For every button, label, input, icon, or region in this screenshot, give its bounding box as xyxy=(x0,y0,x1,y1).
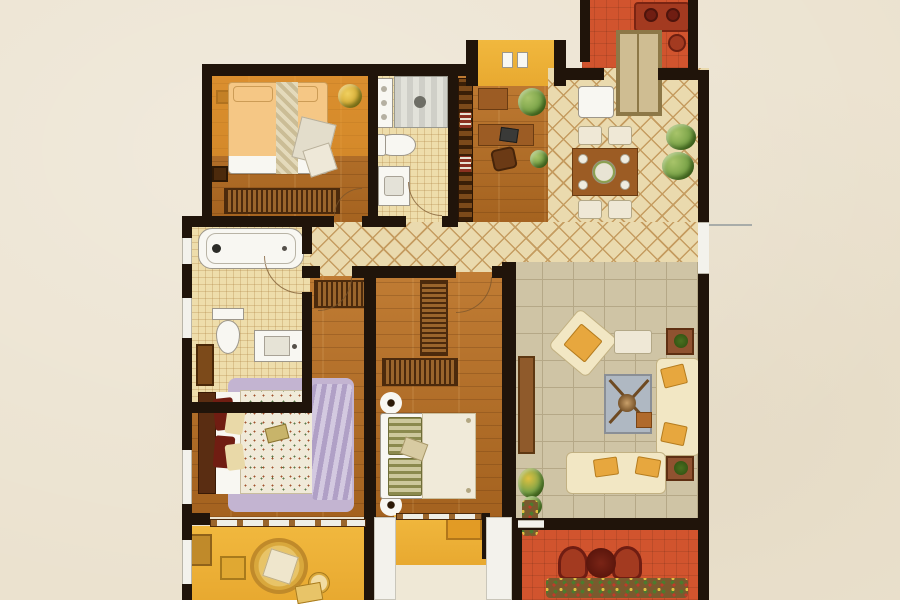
window-right xyxy=(698,222,709,274)
wall-balcony-tr-right xyxy=(688,0,698,78)
wall-bm-left-stub xyxy=(364,517,374,600)
balcony-bottom-middle-mat xyxy=(394,565,488,600)
wall-bath1-bottom xyxy=(184,402,310,413)
sofa-bottom-cushion2 xyxy=(635,456,662,478)
window-left-3 xyxy=(182,450,192,504)
study-plant-small xyxy=(530,150,548,168)
balcony-bench xyxy=(634,2,690,32)
wall-top-main xyxy=(202,64,470,76)
bedroom-left-dresser xyxy=(196,344,214,386)
platform-unit2 xyxy=(517,52,528,68)
tv-cabinet xyxy=(518,356,535,454)
wall-platform-left xyxy=(466,40,478,86)
bedroom1-wardrobe xyxy=(224,188,340,214)
slider-bed2-balcony xyxy=(210,519,366,527)
washer-knob1 xyxy=(381,86,387,92)
bedroom-middle-wardrobe-tall xyxy=(420,280,448,356)
balcony-bl-table xyxy=(220,556,246,580)
wall-bedroom1-left xyxy=(202,64,212,227)
bathtub-tap xyxy=(282,246,287,251)
entry-door-frame xyxy=(616,30,662,116)
wall-right-upper xyxy=(698,70,709,222)
vanity-left-sink xyxy=(264,336,290,356)
bench-bowl2 xyxy=(666,8,680,22)
bed1-runner xyxy=(276,82,298,174)
books-red xyxy=(460,112,471,128)
bed3-tuft1 xyxy=(466,418,471,423)
window-left-2 xyxy=(182,298,192,338)
study-cabinet xyxy=(478,88,508,110)
sofa-bottom-cushion1 xyxy=(593,456,619,477)
toilet-left-tank xyxy=(212,308,244,320)
bed3-duvet xyxy=(422,413,476,499)
wall-terrace-right xyxy=(698,518,709,600)
dining-plate-2 xyxy=(620,154,630,164)
wall-bath2-right xyxy=(448,64,458,226)
wall-right-lower xyxy=(698,274,709,520)
balcony-bl-shelf xyxy=(190,534,212,566)
wall-balcony-tr-left xyxy=(580,0,590,62)
wall-bath1-right-b xyxy=(302,292,312,413)
wall-bed2-bed3 xyxy=(364,272,376,517)
side-table-bottom-plant xyxy=(674,461,688,475)
vanity-left-tap xyxy=(292,344,297,349)
dining-plate-1 xyxy=(578,154,588,164)
window-balcony-bm-left xyxy=(374,517,396,600)
window-balcony-bl xyxy=(182,540,192,584)
vanity-top-sink xyxy=(384,176,404,196)
entry-door-leaf xyxy=(637,34,639,112)
dining-chair-2 xyxy=(608,126,632,145)
dining-plant-1 xyxy=(666,124,696,150)
bedroom1-plant xyxy=(338,84,362,108)
balcony-pot xyxy=(668,34,686,52)
wall-bed1-bath2 xyxy=(368,64,378,227)
floor-plan xyxy=(0,0,900,600)
wall-bath1-right-a xyxy=(302,216,312,254)
shower-drain xyxy=(414,96,426,108)
dining-chair-3 xyxy=(578,200,602,219)
wall-bed1-bottom-b xyxy=(362,216,378,227)
terrace-chair-left xyxy=(558,546,588,580)
coffee-tray xyxy=(636,412,652,428)
dining-plate-4 xyxy=(620,180,630,190)
window-left-1 xyxy=(182,238,192,264)
platform-unit1 xyxy=(502,52,513,68)
bed1-stool xyxy=(212,166,228,182)
terrace-flower-bed xyxy=(546,578,688,598)
bench-bowl1 xyxy=(644,8,658,22)
slider-living-terrace xyxy=(518,520,544,528)
washer-knob2 xyxy=(381,100,387,106)
washer-knob3 xyxy=(381,114,387,120)
bathtub-drain xyxy=(212,244,221,253)
bed3-tuft2 xyxy=(466,488,471,493)
dining-plate-3 xyxy=(578,180,588,190)
slider-bed3-balcony xyxy=(396,513,482,520)
dining-chair-4 xyxy=(608,200,632,219)
wall-bath2-bottom-a xyxy=(378,216,406,227)
dining-plant-2 xyxy=(662,152,694,180)
window-balcony-bm-right xyxy=(486,517,512,600)
console-table xyxy=(614,330,652,354)
bed2-pillow-cream2 xyxy=(224,443,245,471)
wall-bath2-bottom-b xyxy=(442,216,458,227)
study-plant xyxy=(518,88,546,116)
dining-centerpiece xyxy=(592,160,616,184)
fridge xyxy=(578,86,614,118)
dimension-line xyxy=(706,224,752,226)
side-table-top-plant xyxy=(674,334,688,348)
bookshelf xyxy=(458,78,473,222)
nightstand-lamp-top xyxy=(380,392,402,414)
bed3-pillow2 xyxy=(388,458,422,496)
living-plant xyxy=(518,468,544,498)
wall-hall-bottom-a xyxy=(302,266,320,278)
bed2-purple-throw xyxy=(312,384,352,500)
desk-laptop xyxy=(499,127,519,143)
coffee-table-deco xyxy=(618,394,636,412)
wall-bed3-living xyxy=(502,262,516,518)
bedroom-middle-wardrobe xyxy=(382,358,458,386)
dining-chair-1 xyxy=(578,126,602,145)
wall-dining-top-left xyxy=(556,68,604,80)
terrace-chair-right xyxy=(612,546,642,580)
books-red2 xyxy=(460,156,471,172)
terrace-table xyxy=(586,548,616,578)
wall-bl-stub xyxy=(182,513,210,525)
wall-bed1-bottom-a xyxy=(202,216,334,227)
balcony-bl-rug xyxy=(295,582,324,604)
